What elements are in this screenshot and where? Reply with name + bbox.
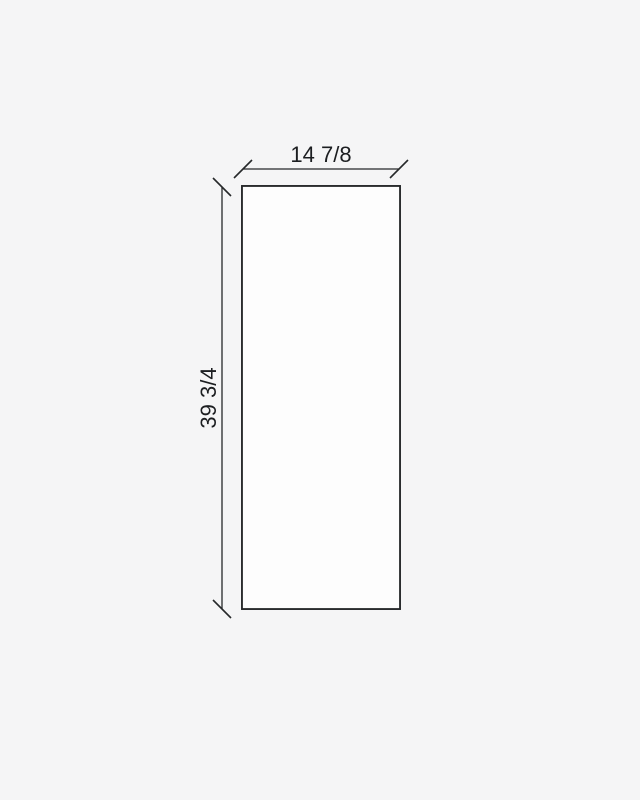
panel-rectangle: [242, 186, 400, 609]
width-dimension-label: 14 7/8: [290, 142, 351, 167]
drawing-canvas: 14 7/8 39 3/4: [0, 0, 640, 800]
height-dimension-label: 39 3/4: [196, 367, 221, 428]
dimension-drawing: 14 7/8 39 3/4: [0, 0, 640, 800]
